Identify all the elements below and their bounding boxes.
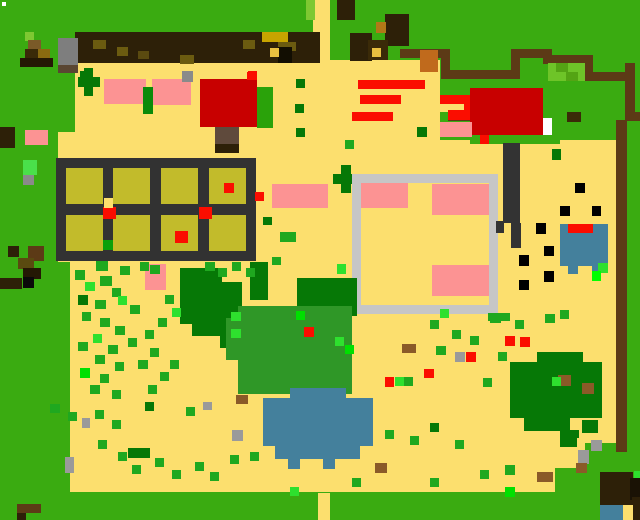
map-pixel: [210, 472, 219, 481]
pink-bed: [440, 122, 472, 137]
map-pixel: [78, 295, 88, 305]
map-pixel: [68, 412, 77, 421]
map-pixel: [545, 314, 555, 323]
tree-highlight: [552, 377, 561, 386]
map-pixel: [402, 344, 416, 353]
pink-building: [152, 79, 191, 105]
map-pixel: [345, 345, 354, 354]
barn: [470, 88, 543, 135]
map-pixel: [505, 487, 515, 497]
map-pixel: [515, 320, 524, 329]
map-pixel: [537, 472, 553, 482]
tree-fruit: [582, 383, 594, 394]
grass-speck: [80, 71, 89, 80]
map-pixel: [128, 338, 137, 347]
map-pixel: [148, 385, 157, 394]
chimney-base: [215, 144, 239, 153]
map-pixel: [82, 312, 91, 321]
map-pixel: [424, 369, 434, 378]
corner-water: [600, 505, 625, 520]
map-pixel: [290, 487, 299, 496]
map-pixel: [165, 295, 174, 304]
gray-speck: [182, 71, 193, 82]
corner-sand: [623, 505, 633, 520]
map-pixel: [296, 311, 305, 320]
small-pond: [568, 266, 578, 274]
grass-speck: [552, 149, 561, 160]
map-pixel: [115, 362, 124, 371]
grass-border-left: [0, 132, 58, 262]
dirt-blob: [385, 14, 409, 46]
map-pixel: [519, 280, 529, 290]
map-pixel: [186, 407, 195, 416]
map-pixel: [395, 377, 404, 386]
map-pixel: [455, 352, 465, 362]
map-pixel: [85, 282, 95, 291]
map-pixel: [112, 420, 121, 429]
map-pixel: [170, 360, 179, 369]
center-pond: [288, 459, 300, 469]
map-pixel: [430, 478, 439, 487]
stone-block-base: [58, 65, 78, 73]
map-pixel: [95, 300, 106, 309]
map-pixel: [255, 192, 264, 201]
map-pixel: [108, 345, 118, 354]
red-marker: [103, 207, 116, 219]
dark-tower: [511, 223, 521, 248]
map-pixel: [404, 377, 413, 386]
bottom-dirt: [17, 513, 26, 520]
gold-speck: [270, 48, 279, 57]
map-pixel: [592, 206, 601, 216]
map-pixel: [345, 140, 354, 149]
red-marker: [199, 207, 212, 219]
map-pixel: [483, 378, 492, 387]
map-pixel: [440, 309, 449, 318]
map-pixel: [100, 374, 109, 383]
bush-shade: [566, 72, 578, 81]
white-dot: [2, 2, 6, 6]
map-pixel: [263, 217, 272, 225]
center-pond: [263, 398, 373, 446]
trunk-pixel: [28, 40, 41, 49]
map-pixel: [150, 265, 160, 274]
big-tree: [180, 268, 222, 324]
map-pixel: [132, 465, 141, 474]
map-pixel: [205, 262, 215, 271]
gold-speck: [372, 48, 381, 57]
map-pixel: [304, 327, 314, 337]
map-pixel: [296, 79, 305, 88]
map-pixel: [505, 465, 515, 475]
chimney: [215, 127, 239, 144]
dirt-speck: [180, 55, 194, 64]
big-tree: [226, 318, 240, 360]
map-pixel: [78, 342, 88, 351]
big-tree: [192, 322, 220, 336]
map-pixel: [100, 318, 110, 327]
map-pixel: [470, 336, 479, 345]
grass-speck: [103, 240, 113, 250]
red-marker: [224, 183, 234, 193]
map-pixel: [112, 390, 121, 399]
game-map[interactable]: [0, 0, 640, 520]
map-pixel: [490, 313, 501, 323]
map-pixel: [250, 452, 259, 461]
gold-patch: [262, 32, 288, 42]
map-pixel: [466, 352, 476, 362]
map-pixel: [236, 395, 248, 404]
map-pixel: [385, 430, 394, 439]
map-pixel: [95, 410, 104, 419]
map-pixel: [130, 305, 140, 314]
map-pixel: [519, 255, 529, 266]
map-pixel: [50, 404, 60, 413]
map-pixel: [560, 310, 569, 319]
map-pixel: [436, 346, 446, 355]
map-pixel: [480, 470, 489, 479]
map-pixel: [145, 330, 154, 339]
pond-red-item: [568, 224, 593, 233]
red-speck: [247, 72, 256, 80]
map-pixel: [172, 470, 181, 479]
map-pixel: [80, 368, 90, 378]
dark-tower: [496, 221, 504, 233]
map-pixel: [375, 463, 387, 473]
map-pixel: [230, 455, 239, 464]
dirt-speck: [117, 47, 128, 56]
grass-border-right: [627, 113, 640, 493]
map-pixel: [150, 348, 159, 357]
pink-bed: [272, 184, 328, 208]
map-pixel: [430, 320, 439, 329]
map-pixel: [498, 352, 507, 361]
crop-plot: [113, 168, 150, 204]
grass-bar: [128, 448, 150, 458]
dark-tower: [503, 143, 520, 223]
red-speck: [480, 135, 489, 144]
map-pixel: [155, 458, 164, 467]
map-pixel: [591, 440, 602, 451]
map-pixel: [195, 462, 204, 471]
bush-pixel: [306, 0, 315, 20]
grass-border-left: [0, 262, 70, 520]
bottom-dirt: [17, 504, 41, 513]
pink-building: [104, 79, 146, 104]
map-pixel: [158, 318, 167, 327]
map-pixel: [505, 336, 515, 346]
map-pixel: [575, 183, 585, 193]
crop-plot: [209, 215, 246, 251]
fruit-tree: [582, 420, 598, 433]
map-pixel: [452, 330, 461, 339]
dirt-speck: [138, 51, 149, 59]
map-pixel: [536, 223, 546, 234]
pink-patch-left: [25, 130, 48, 145]
map-pixel: [140, 262, 149, 271]
red-house: [200, 79, 257, 127]
map-pixel: [203, 402, 212, 410]
red-stripe: [360, 95, 401, 104]
red-stripe: [358, 80, 425, 89]
compound-bed: [432, 184, 489, 215]
crop-plot: [66, 168, 103, 204]
map-pixel: [430, 423, 439, 432]
map-pixel: [296, 128, 305, 137]
map-pixel: [417, 127, 427, 137]
red-stripe: [352, 112, 393, 121]
map-pixel: [160, 372, 169, 381]
orange-speck: [376, 22, 386, 33]
bright-grass: [23, 160, 37, 175]
dark-speck: [278, 47, 292, 63]
dirt-path-left: [8, 246, 19, 257]
map-pixel: [118, 452, 127, 461]
dirt-path-left: [0, 278, 22, 289]
bright-grass: [592, 271, 601, 281]
corner-building: [600, 472, 633, 505]
sand-speck: [104, 198, 113, 208]
map-pixel: [115, 326, 125, 335]
orange-square: [420, 50, 438, 72]
map-pixel: [118, 296, 127, 305]
map-pixel: [95, 355, 105, 364]
map-pixel: [246, 268, 255, 277]
fence: [625, 112, 640, 121]
trunk-pixel: [20, 58, 53, 67]
map-pixel: [231, 329, 241, 338]
map-pixel: [335, 337, 344, 346]
corner-building: [632, 497, 640, 520]
map-pixel: [578, 450, 589, 464]
barn-door: [543, 118, 552, 135]
dirt-path-left: [23, 277, 34, 288]
fence: [441, 70, 520, 79]
map-pixel: [560, 206, 570, 216]
map-pixel: [272, 257, 281, 265]
dark-patch-left: [0, 127, 15, 148]
map-pixel: [138, 360, 148, 369]
big-tree: [238, 306, 352, 394]
dirt-speck: [243, 40, 255, 49]
map-pixel: [352, 478, 361, 487]
map-pixel: [231, 312, 241, 321]
map-pixel: [218, 268, 227, 277]
fruit-tree: [524, 417, 570, 431]
map-pixel: [280, 232, 296, 242]
crop-plot: [113, 215, 150, 251]
center-pond: [323, 459, 335, 469]
crop-plot: [66, 215, 103, 251]
map-pixel: [100, 276, 112, 286]
map-pixel: [90, 385, 100, 394]
bright-grass: [634, 471, 640, 478]
map-pixel: [120, 266, 130, 275]
map-pixel: [65, 457, 74, 473]
green-annex: [257, 87, 273, 128]
crop-plot: [161, 168, 198, 204]
dirt-speck: [93, 40, 106, 49]
gray-speck: [23, 175, 34, 185]
map-pixel: [544, 246, 554, 256]
map-pixel: [82, 418, 90, 428]
map-pixel: [544, 271, 554, 282]
fence-right: [616, 120, 627, 452]
dirt-column: [337, 0, 355, 20]
map-pixel: [75, 270, 85, 280]
map-pixel: [232, 430, 243, 441]
map-pixel: [172, 308, 181, 317]
map-pixel: [455, 440, 464, 449]
center-pond: [275, 446, 360, 459]
map-pixel: [93, 334, 102, 343]
compound-bed: [432, 265, 489, 296]
stone-block: [58, 38, 78, 65]
trunk-pixel: [38, 49, 50, 58]
map-pixel: [410, 436, 419, 445]
path-bottom-exit: [318, 493, 330, 520]
map-pixel: [385, 377, 394, 387]
map-pixel: [96, 261, 108, 271]
map-pixel: [570, 430, 579, 438]
dark-speck: [567, 112, 581, 122]
barn-roof-zig: [448, 110, 472, 120]
map-pixel: [98, 440, 107, 449]
compound-bed: [361, 183, 408, 208]
map-pixel: [232, 262, 241, 271]
map-pixel: [576, 463, 587, 473]
map-pixel: [337, 264, 346, 274]
map-pixel: [295, 104, 304, 113]
red-marker: [175, 231, 188, 243]
green-door: [143, 87, 153, 114]
map-pixel: [520, 337, 530, 347]
map-pixel: [145, 402, 154, 411]
bush-shade: [556, 63, 568, 72]
